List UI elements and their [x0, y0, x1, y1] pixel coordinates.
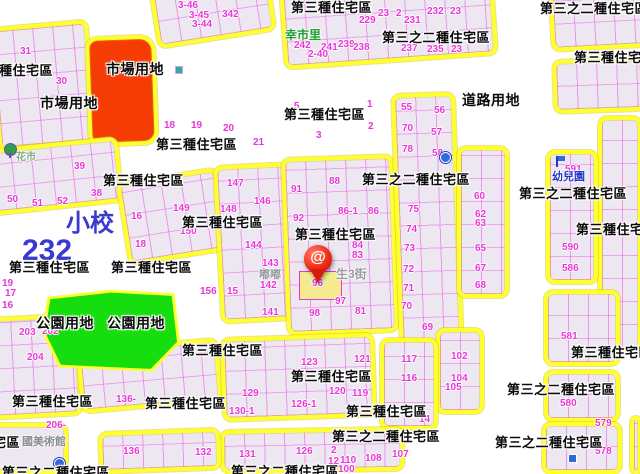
parcel-number: 81 [355, 307, 366, 317]
zone-label: 第三種住宅區 [576, 223, 640, 237]
parcel-number: 204 [27, 353, 44, 363]
parcel-number: 69 [422, 323, 433, 333]
parcel-number: 1 [367, 100, 373, 110]
parcel-number: 107 [392, 450, 409, 460]
parcel-number: 21 [253, 138, 264, 148]
parcel-number: 342 [222, 10, 239, 20]
parcel-number: 65 [475, 244, 486, 254]
pin-swirl-glyph: @ [310, 250, 326, 266]
zone-label: 第三種住宅區 [103, 174, 184, 188]
zone-label: 第三種住宅區 [111, 261, 192, 275]
city-block [630, 416, 640, 474]
zone-label: 第三之二種住宅區 [540, 2, 640, 16]
parcel-number: 206- [46, 421, 66, 431]
zoning-map[interactable]: 第三種住宅區市場用地市場用地第三種住宅區第三之二種住宅區第三之二種住宅區第三種住… [0, 0, 640, 474]
parcel-number: 74 [406, 225, 417, 235]
shop-poi-icon [175, 66, 183, 74]
zone-label: 第三種住宅區 [284, 108, 365, 122]
parcel-number: 119 [352, 389, 368, 399]
parcel-number: 229 [359, 16, 376, 26]
parcel-number: 97 [335, 297, 346, 307]
zone-label: 第三種住宅區 [182, 216, 263, 230]
city-block [0, 19, 98, 151]
parcel-number: 86-1 [338, 207, 358, 217]
zone-label: 市場用地 [106, 62, 164, 77]
zone-label: 第三種住宅區 [145, 397, 226, 411]
parcel-number: 121 [354, 355, 371, 365]
zone-label: 第三種住宅區 [12, 395, 93, 409]
parcel-number: 231 [404, 16, 421, 26]
parcel-number: 38 [91, 189, 102, 199]
zone-label: 第三之二種住宅區 [2, 466, 110, 474]
parcel-number: 91 [291, 185, 302, 195]
zone-label: 第三之二種住宅區 [0, 436, 20, 450]
parcel-number: 70 [401, 302, 412, 312]
parcel-number: 31 [20, 47, 31, 57]
park-tree-icon [4, 143, 17, 156]
building-poi-icon [568, 454, 577, 463]
poi-label: 幸市里 [285, 29, 321, 41]
parcel-number: 17 [5, 289, 16, 299]
parcel-number: 52 [57, 197, 68, 207]
city-block [148, 0, 277, 49]
parcel-number: 2-40 [308, 50, 328, 60]
location-pin[interactable]: @ [302, 245, 334, 285]
zone-label: 市場用地 [40, 96, 98, 111]
parcel-number: 88 [329, 177, 340, 187]
poi-label: 小校 [66, 212, 114, 236]
parcel-number: 2 [331, 446, 337, 456]
zone-label: 第三種住宅區 [291, 1, 372, 15]
zone-label: 第三種住宅區 [295, 228, 376, 242]
zone-label: 第三種住宅區 [156, 138, 237, 152]
zone-label: 第三之二種住宅區 [362, 173, 470, 187]
parcel-number: 23 [378, 9, 389, 19]
parcel-number: 105 [445, 383, 462, 393]
parcel-number: 100 [338, 465, 355, 474]
parcel-number: 70 [402, 124, 413, 134]
park-land-area [42, 288, 180, 376]
parcel-number: 57 [431, 128, 442, 138]
poi-label: 國美術館 [22, 437, 66, 448]
parcel-number: 156 [200, 287, 217, 297]
parcel-number: 581 [561, 332, 578, 342]
parcel-number: 2 [368, 122, 374, 132]
parcel-number: 146 [254, 197, 271, 207]
parcel-number: 232 [427, 7, 444, 17]
parcel-number: 68 [475, 281, 486, 291]
zone-label: 公園用地 [36, 316, 94, 331]
parcel-number: 237 [401, 44, 418, 54]
parcel-number: 15 [227, 287, 238, 297]
poi-label: 嘟嘟 [259, 270, 281, 281]
poi-label: 生3街 [336, 268, 367, 280]
parcel-number: 75 [408, 205, 419, 215]
parcel-number: 142 [260, 281, 277, 291]
parcel-number: 92 [293, 214, 304, 224]
zone-label: 第三種住宅區 [9, 261, 90, 275]
parcel-number: 78 [402, 145, 413, 155]
city-block [552, 57, 640, 114]
parcel-number: 149 [173, 204, 190, 214]
parcel-number: 131 [239, 450, 256, 460]
parcel-number: 2 [396, 9, 402, 19]
pin-tail [310, 269, 326, 283]
parcel-number: 235 [427, 45, 444, 55]
parcel-number: 117 [401, 355, 417, 365]
parcel-number: 203 [19, 328, 36, 338]
parcel-number: 19 [191, 121, 202, 131]
parcel-number: 126 [296, 447, 313, 457]
zone-label: 第三之二種住宅區 [495, 436, 603, 450]
parcel-number: 580 [560, 399, 577, 409]
zone-label: 公園用地 [107, 316, 165, 331]
parcel-number: 98 [309, 309, 320, 319]
parcel-number: 67 [475, 264, 486, 274]
parcel-number: 23 [451, 45, 462, 55]
school-poi-icon [440, 152, 451, 163]
zone-label: 第三種住宅區 [0, 64, 53, 78]
parcel-number: 126-1 [291, 400, 317, 410]
city-block [436, 328, 484, 414]
parcel-number: 51 [32, 199, 43, 209]
parcel-number: 60 [474, 192, 485, 202]
parcel-number: 72 [403, 265, 414, 275]
zone-label: 第三種住宅區 [574, 51, 640, 65]
zone-label: 第三之二種住宅區 [332, 430, 440, 444]
parcel-number: 63 [475, 219, 486, 229]
parcel-number: 71 [403, 284, 414, 294]
parcel-number: 586 [562, 264, 579, 274]
parcel-number: 144 [245, 241, 262, 251]
parcel-number: 20 [223, 124, 234, 134]
poi-label: 幼兒園 [552, 172, 585, 183]
parcel-number: 102 [451, 352, 468, 362]
parcel-number: 3 [316, 131, 322, 141]
parcel-number: 120 [329, 387, 346, 397]
zone-label: 第三之二種住宅區 [382, 31, 490, 45]
parcel-number: 579 [595, 419, 612, 429]
parcel-number: 18 [135, 240, 146, 250]
parcel-number: 50 [7, 195, 18, 205]
parcel-number: 30 [56, 77, 67, 87]
parcel-number: 39 [74, 162, 85, 172]
parcel-number: 238 [353, 43, 370, 53]
parcel-number: 148 [220, 205, 237, 215]
zone-label: 第三之二種住宅區 [519, 187, 627, 201]
zone-label: 第三之二種住宅區 [231, 465, 339, 474]
parcel-number: 123 [301, 358, 318, 368]
kindergarten-flag-icon [556, 156, 558, 167]
parcel-number: 130-1 [229, 407, 255, 417]
park-land-fill [45, 291, 177, 373]
zone-label: 第三種住宅區 [291, 370, 372, 384]
parcel-number: 132 [195, 448, 212, 458]
parcel-number: 16 [2, 301, 13, 311]
parcel-number: 18 [164, 121, 175, 131]
zone-label: 第三之二種住宅區 [507, 383, 615, 397]
zone-label: 第三種住宅區 [571, 346, 640, 360]
parcel-number: 136 [123, 447, 140, 457]
zone-label: 第三種住宅區 [346, 405, 427, 419]
zone-label: 道路用地 [462, 93, 520, 108]
parcel-number: 108 [365, 454, 382, 464]
parcel-number: 129 [242, 389, 259, 399]
market-land-area [85, 35, 159, 147]
parcel-number: 136- [116, 395, 136, 405]
parcel-number: 147 [227, 179, 244, 189]
poi-label: 花市 [16, 153, 36, 163]
zone-label: 第三種住宅區 [182, 344, 263, 358]
parcel-number: 141 [262, 308, 279, 318]
parcel-number: 16 [131, 212, 142, 222]
parcel-number: 143 [262, 259, 279, 269]
parcel-number: 56 [434, 106, 445, 116]
parcel-number: 116 [401, 374, 417, 384]
parcel-number: 83 [352, 251, 363, 261]
parcel-number: 86 [368, 207, 379, 217]
parcel-number: 73 [404, 244, 415, 254]
parcel-number: 3-44 [192, 20, 212, 30]
parcel-number: 23 [450, 7, 461, 17]
parcel-number: 590 [562, 243, 579, 253]
parcel-number: 55 [401, 103, 412, 113]
